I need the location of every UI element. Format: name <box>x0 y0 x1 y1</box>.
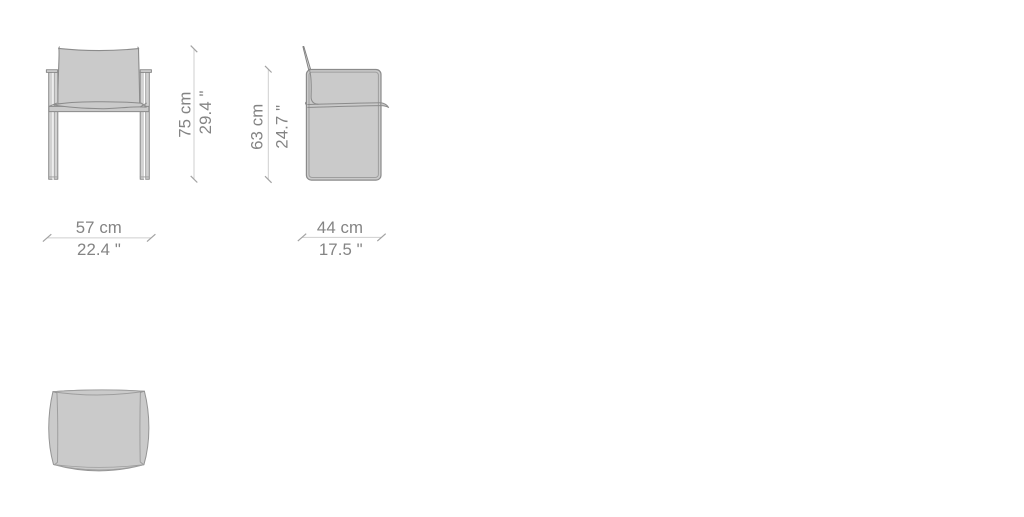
svg-text:24.7 ": 24.7 " <box>272 105 291 149</box>
svg-text:22.4 ": 22.4 " <box>77 240 121 259</box>
svg-text:63 cm: 63 cm <box>248 104 267 150</box>
svg-text:75 cm: 75 cm <box>176 92 195 138</box>
svg-text:57 cm: 57 cm <box>76 218 122 237</box>
svg-text:17.5 ": 17.5 " <box>319 240 363 259</box>
svg-text:29.4 ": 29.4 " <box>196 90 215 134</box>
svg-text:44 cm: 44 cm <box>317 218 363 237</box>
